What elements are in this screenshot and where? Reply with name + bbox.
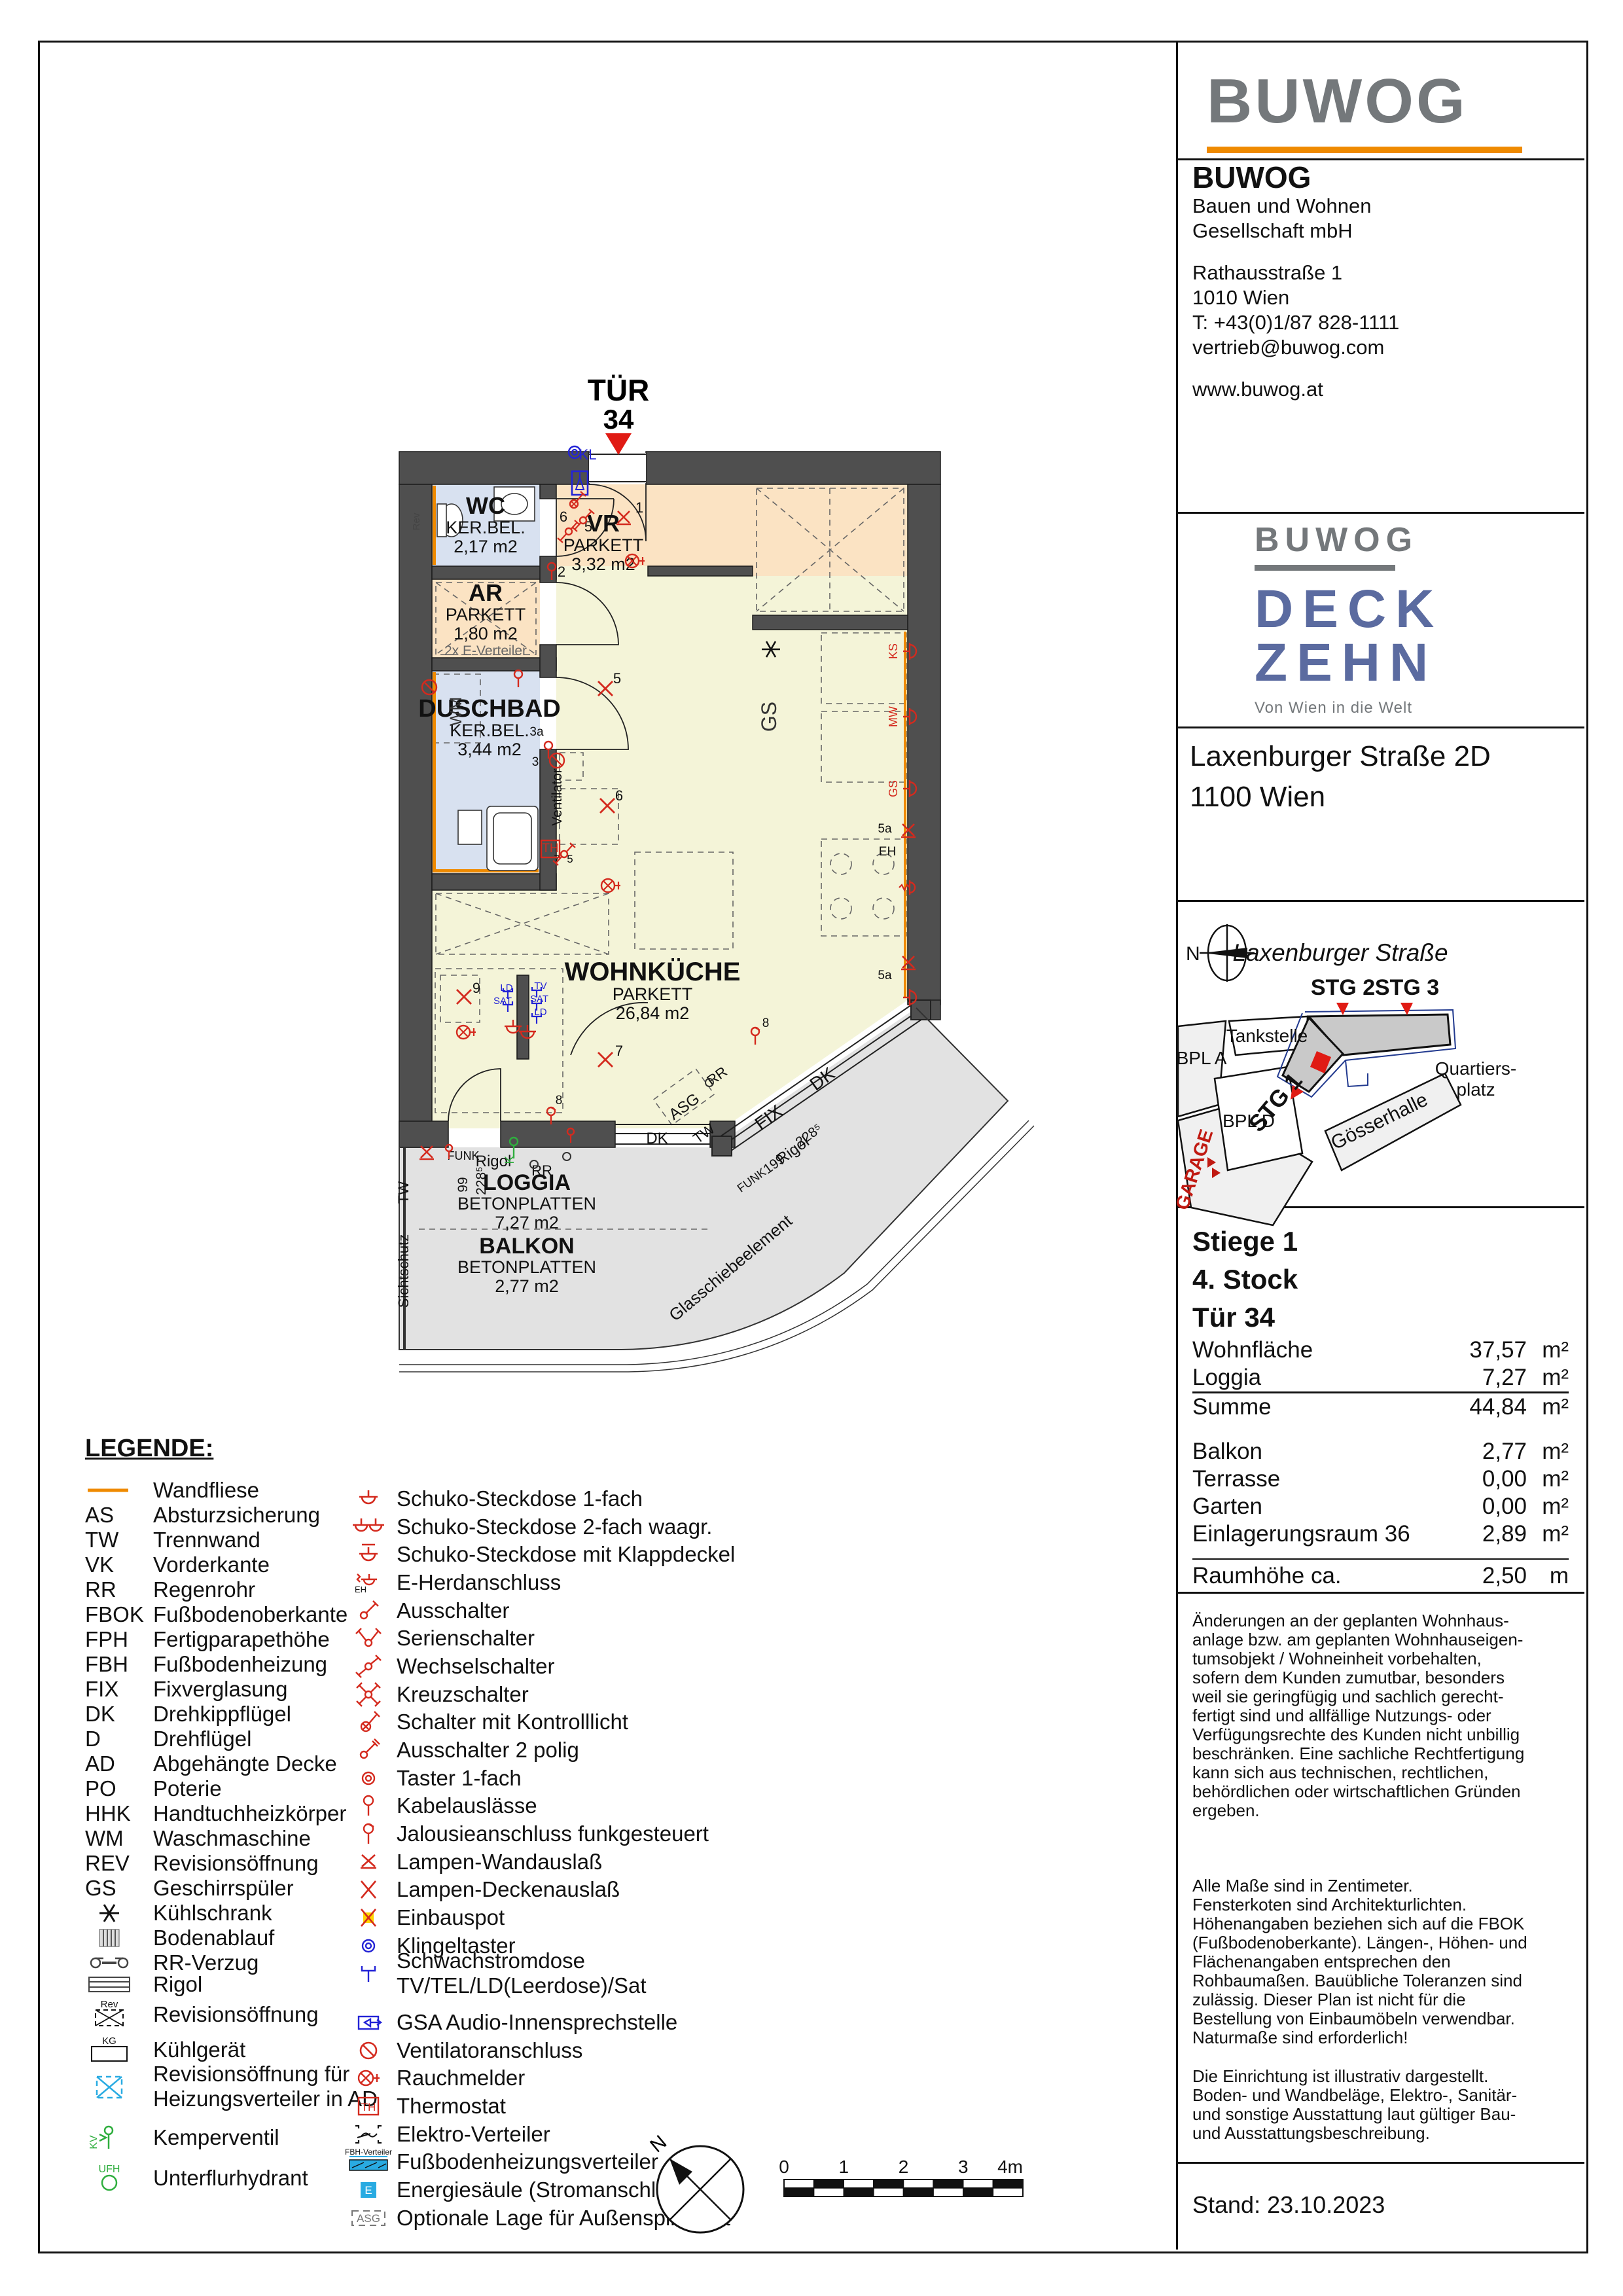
- scalebar-segment: [993, 2188, 1023, 2197]
- plan-annotation: Sichtschutz: [395, 1234, 412, 1308]
- plan-annotation: 6: [560, 509, 567, 525]
- plan-annotation: K: [503, 1155, 517, 1164]
- scalebar-segment: [874, 2188, 904, 2197]
- map-stg3-label: STG 3: [1375, 975, 1439, 1000]
- plan-annotation: 5a: [878, 969, 892, 982]
- plan-annotation: 7: [615, 1043, 623, 1059]
- room-floor-type: PARKETT: [563, 535, 644, 555]
- plan-annotation: 2: [558, 564, 565, 580]
- plan-annotation: DK: [646, 1130, 668, 1147]
- plan-annotation: RR: [531, 1162, 552, 1179]
- plan-annotation: TH: [542, 842, 558, 855]
- map-street-label: Laxenburger Straße: [1232, 939, 1448, 966]
- plan-annotation: 5a: [878, 822, 892, 836]
- room-area: 26,84 m2: [616, 1003, 690, 1023]
- plan-annotation: EH: [879, 845, 896, 859]
- room-floor-type: KER.BEL.: [446, 518, 526, 537]
- plan-annotation: 3a: [529, 725, 544, 739]
- entrance-marker: TÜR 34: [588, 373, 650, 455]
- map-stg2-label: STG 2: [1311, 975, 1375, 1000]
- room-sub-note: 2x E-Verteiler: [444, 643, 527, 658]
- plan-annotation: 99: [455, 1177, 471, 1192]
- plan-annotation: 5: [584, 518, 592, 535]
- room-floor-type: BETONPLATTEN: [457, 1257, 596, 1277]
- room-floor-type: BETONPLATTEN: [457, 1194, 596, 1213]
- map-parcel-outline2: [1346, 1060, 1368, 1086]
- compass-icon: N: [646, 2131, 743, 2233]
- scalebar-segment: [844, 2188, 874, 2197]
- scalebar-tick: 1: [838, 2157, 849, 2177]
- scalebar-segment: [784, 2179, 814, 2188]
- plan-annotation: KL: [579, 446, 597, 463]
- room-name-wohnküche: WOHNKÜCHE: [565, 957, 741, 986]
- plan-annotation: 6: [615, 787, 623, 804]
- plan-sheet: BUWOG BUWOG Bauen und Wohnen Gesellschaf…: [0, 0, 1623, 2296]
- room-floor-type: PARKETT: [446, 605, 526, 624]
- room-name-balkon: BALKON: [479, 1234, 574, 1259]
- scalebar-segment: [933, 2179, 963, 2188]
- plan-annotation: GS: [887, 780, 900, 797]
- plan-annotation: Rev: [411, 512, 422, 530]
- room-name-wc: WC: [466, 492, 505, 519]
- room-area: 1,80 m2: [454, 624, 518, 643]
- scalebar-segment: [933, 2188, 963, 2197]
- site-map: N Laxenburger Straße STG 2 STG 3 Tankste…: [1172, 924, 1517, 1225]
- plan-annotation: 8: [556, 1094, 563, 1107]
- plan-annotation: 3: [532, 755, 539, 769]
- compass-north-label: N: [646, 2131, 671, 2157]
- room-floor-type: PARKETT: [613, 984, 693, 1004]
- map-stg2-arrow-icon: [1336, 1003, 1349, 1015]
- scalebar-segment: [993, 2179, 1023, 2188]
- map-bpl-a-label: BPL A: [1177, 1048, 1227, 1068]
- scalebar-tick: 2: [899, 2157, 909, 2177]
- room-name-duschbad: DUSCHBAD: [418, 695, 560, 723]
- map-tankstelle-label: Tankstelle: [1226, 1026, 1308, 1046]
- room-area: 7,27 m2: [495, 1213, 559, 1232]
- scalebar-segment: [963, 2179, 993, 2188]
- plan-annotation: TW: [395, 1181, 412, 1204]
- plan-annotation: Ventilator: [550, 768, 565, 826]
- plan-annotation: 228⁵: [474, 1166, 489, 1195]
- door-label-line2: 34: [603, 404, 634, 435]
- map-quartiersplatz-label1: Quartiers-: [1435, 1058, 1516, 1079]
- scalebar-segment: [844, 2179, 874, 2188]
- room-name-ar: AR: [469, 579, 503, 606]
- entrance-triangle-icon: [605, 433, 632, 455]
- map-north-label: N: [1186, 943, 1200, 965]
- scalebar-tick: 0: [779, 2157, 789, 2177]
- plan-annotation: KS: [887, 643, 900, 659]
- scalebar-segment: [963, 2188, 993, 2197]
- plan-annotation: 5: [613, 670, 621, 687]
- room-area: 3,44 m2: [457, 740, 522, 759]
- scale-bar: 01234m: [779, 2157, 1023, 2197]
- room-area: 2,17 m2: [454, 537, 518, 556]
- plan-annotation: MW: [887, 706, 900, 727]
- scalebar-segment: [904, 2188, 934, 2197]
- map-stg3-arrow-icon: [1400, 1003, 1413, 1015]
- plan-annotation: 1: [635, 499, 643, 516]
- scalebar-segment: [874, 2179, 904, 2188]
- scalebar-segment: [784, 2188, 814, 2197]
- room-name-loggia: LOGGIA: [483, 1170, 571, 1195]
- floor-plan-drawing: TÜR 34 WCKER.BEL.2,17 m2VRPARKETT3,32 m2…: [0, 0, 1623, 2296]
- scalebar-tick: 3: [958, 2157, 969, 2177]
- scalebar-segment: [904, 2179, 934, 2188]
- room-area: 2,77 m2: [495, 1276, 559, 1296]
- plan-annotation: GS: [757, 702, 781, 732]
- map-quartiersplatz-label2: platz: [1456, 1079, 1495, 1100]
- scalebar-segment: [814, 2179, 844, 2188]
- plan-annotation: 9: [473, 980, 480, 996]
- door-label-line1: TÜR: [588, 373, 650, 407]
- scalebar-tick: 4m: [997, 2157, 1023, 2177]
- plan-annotation: 8: [762, 1016, 770, 1030]
- plan-annotation: WM: [447, 697, 465, 726]
- scalebar-segment: [814, 2188, 844, 2197]
- plan-annotation: FUNK: [448, 1149, 480, 1162]
